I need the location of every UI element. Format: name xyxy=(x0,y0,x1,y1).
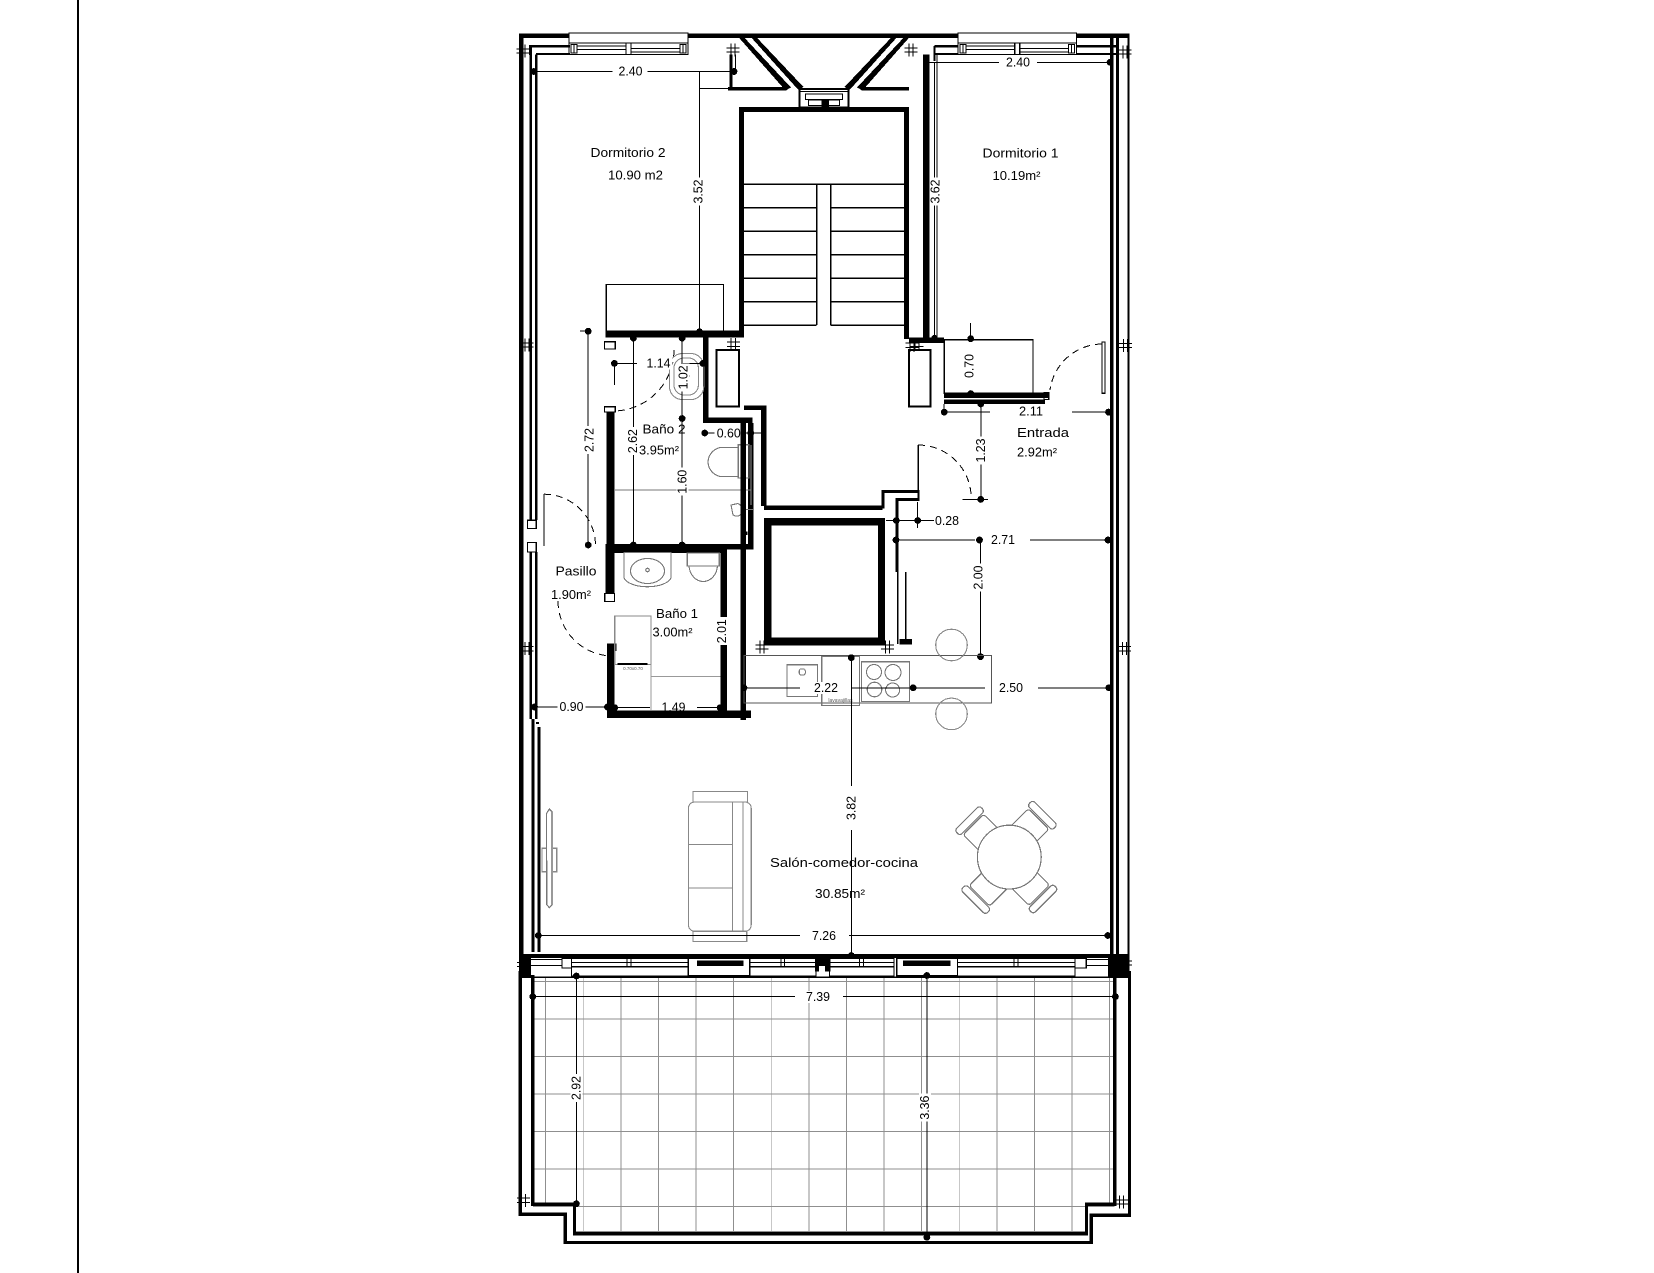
svg-text:0.60: 0.60 xyxy=(717,426,741,440)
svg-text:10.90 m2: 10.90 m2 xyxy=(608,168,663,183)
svg-text:Entrada: Entrada xyxy=(1017,425,1070,440)
svg-text:3.36: 3.36 xyxy=(918,1096,932,1120)
svg-text:2.01: 2.01 xyxy=(715,619,729,643)
svg-text:3.95m²: 3.95m² xyxy=(639,443,680,458)
svg-text:3.82: 3.82 xyxy=(845,796,859,820)
svg-text:7.39: 7.39 xyxy=(806,990,830,1004)
svg-text:10.19m²: 10.19m² xyxy=(993,168,1042,183)
svg-text:1.60: 1.60 xyxy=(676,470,690,494)
svg-text:2.11: 2.11 xyxy=(1019,405,1043,419)
svg-text:2.92: 2.92 xyxy=(569,1076,583,1100)
svg-text:3.52: 3.52 xyxy=(692,179,706,203)
svg-text:Salón-comedor-cocina: Salón-comedor-cocina xyxy=(770,855,919,870)
svg-text:Baño 1: Baño 1 xyxy=(656,606,698,621)
svg-text:Pasillo: Pasillo xyxy=(556,564,597,579)
svg-text:2.22: 2.22 xyxy=(814,681,838,695)
svg-text:1.02: 1.02 xyxy=(677,365,691,389)
svg-text:1.23: 1.23 xyxy=(974,438,988,462)
svg-text:Baño 2: Baño 2 xyxy=(643,421,686,436)
svg-text:2.00: 2.00 xyxy=(972,565,986,589)
svg-text:2.62: 2.62 xyxy=(626,429,640,453)
svg-text:3.00m²: 3.00m² xyxy=(653,625,694,640)
svg-text:1.90m²: 1.90m² xyxy=(551,587,592,602)
svg-text:2.92m²: 2.92m² xyxy=(1017,445,1058,460)
svg-text:0.90: 0.90 xyxy=(560,700,584,714)
svg-text:3.62: 3.62 xyxy=(929,179,943,203)
svg-text:2.50: 2.50 xyxy=(999,681,1023,695)
svg-text:2.71: 2.71 xyxy=(991,533,1015,547)
svg-text:Dormitorio 1: Dormitorio 1 xyxy=(983,146,1059,161)
svg-text:2.72: 2.72 xyxy=(583,428,597,452)
svg-text:7.26: 7.26 xyxy=(812,929,836,943)
svg-text:0.70x0.70: 0.70x0.70 xyxy=(623,666,643,671)
svg-text:1.14: 1.14 xyxy=(647,357,671,371)
svg-text:Dormitorio 2: Dormitorio 2 xyxy=(591,145,666,160)
svg-text:2.40: 2.40 xyxy=(619,65,643,79)
svg-text:0.28: 0.28 xyxy=(935,514,959,528)
svg-text:lavavajillas: lavavajillas xyxy=(828,698,853,704)
svg-text:2.40: 2.40 xyxy=(1006,55,1030,69)
svg-text:0.70: 0.70 xyxy=(963,354,977,378)
svg-text:30.85m²: 30.85m² xyxy=(815,886,866,901)
